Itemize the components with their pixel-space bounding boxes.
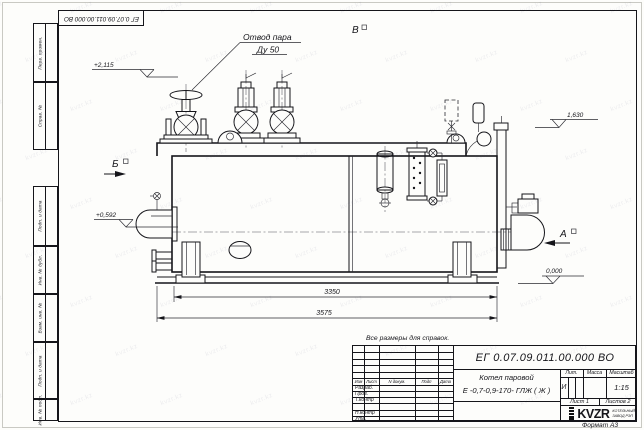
dim-text-3350: 3350 [324,289,340,296]
manhole [229,242,251,259]
title-block: Изм Лист N докум. Подп Дата Разраб. Пров… [352,345,636,421]
svg-text:Отвод пара: Отвод пара [243,32,292,42]
sheet-cell: Лист 1 [560,398,599,405]
svg-text:1,630: 1,630 [567,112,584,119]
skid-base [155,277,499,283]
motor-junction-box [518,199,538,213]
company-cell: KVZR КОТЕЛЬНЫЙ ЗАВОД РЭП [569,406,635,421]
reference-note: Все размеры для справок. [366,335,449,342]
row-utv: Утв. [353,416,381,422]
kvzr-logo-icon [569,407,574,420]
svg-text:Б: Б [112,159,119,170]
view-label-v-top: В [352,25,367,36]
motor-body [511,215,545,250]
svg-text:В: В [352,25,359,36]
boiler-shell [157,143,497,272]
masshtab-header: Масштаб [606,369,637,377]
elevation-1630: 1,630 [535,112,598,128]
steam-outlet-callout: Отвод пара Ду 50 [192,32,301,90]
feed-pump-motor [501,194,545,250]
format-label: Формат А3 [582,422,618,429]
titleblock-designation: ЕГ 0.07.09.011.00.000 ВО [453,346,637,369]
svg-text:А: А [559,229,567,240]
company-name: КОТЕЛЬНЫЙ ЗАВОД РЭП [612,409,635,417]
svg-text:+2,115: +2,115 [94,62,114,69]
dim-text-3575: 3575 [316,310,332,317]
view-label-a-right: А [544,229,576,246]
col-header-ndoc: N докум. [379,378,415,385]
pressure-gauge [467,103,492,154]
elevation-2115: +2,115 [92,62,178,77]
sight-glass [437,160,447,196]
dimension-3350: 3350 [174,286,497,322]
water-level-gauge [407,141,447,205]
lit-header: Лит. [560,369,583,377]
svg-text:+0,592: +0,592 [96,212,116,219]
svg-text:Ду 50: Ду 50 [256,45,279,55]
company-name-line2: ЗАВОД РЭП [612,414,635,418]
top-platform [157,143,466,156]
col-header-data: Дата [438,378,453,385]
massa-header: Масса [583,369,606,377]
elevation-0000: 0,000 [518,268,584,284]
steam-outlet-valve [160,84,212,152]
burner-unit [136,193,177,242]
masshtab-value: 1:15 [606,377,637,398]
kvzr-logo-text: KVZR [577,407,609,421]
front-nozzles [152,250,172,272]
titleblock-product-name-2: Е -0,7-0,9-170- ГЛЖ ( Ж ) [453,383,560,397]
col-header-podp: Подп [415,378,438,385]
drawing-sheet: Перв. примен. Справ. № Подп. и дата Инв.… [0,0,644,430]
sheets-cell: Листов 2 [599,398,637,405]
company-name-line1: КОТЕЛЬНЫЙ [612,409,635,413]
lit-value: И [560,377,568,398]
safety-valve-2 [264,70,300,150]
view-label-b-left: Б [104,159,128,177]
svg-text:0,000: 0,000 [546,268,563,275]
